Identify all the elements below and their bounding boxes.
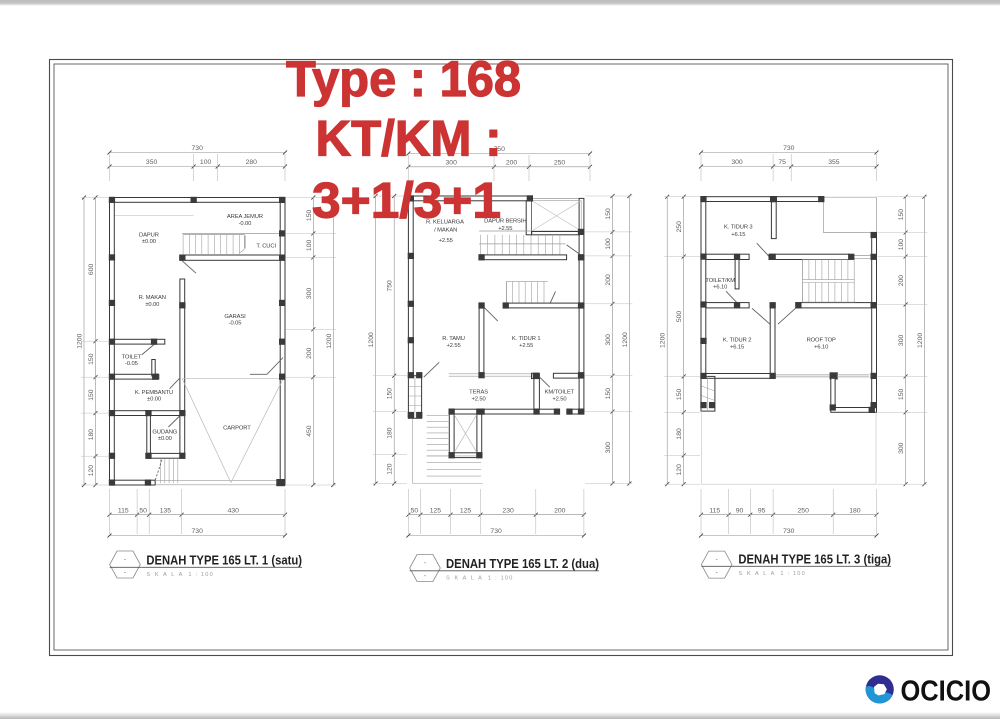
svg-text:350: 350 [146,159,158,166]
svg-text:3+1/3+1: 3+1/3+1 [312,173,501,229]
svg-text:730: 730 [192,528,204,535]
svg-text:150: 150 [605,208,612,220]
svg-text:300: 300 [605,334,612,346]
svg-text:TERAS: TERAS [469,390,488,396]
svg-text:95: 95 [758,507,766,514]
svg-text:120: 120 [88,465,95,477]
svg-text:DENAH TYPE 165 LT. 1 (satu): DENAH TYPE 165 LT. 1 (satu) [146,554,302,568]
svg-text:90: 90 [736,507,744,514]
svg-text:150: 150 [898,209,905,221]
svg-text:430: 430 [228,507,240,514]
svg-text:+6.15: +6.15 [730,344,744,350]
svg-text:125: 125 [430,507,442,514]
svg-text:1200: 1200 [326,333,333,348]
svg-text:100: 100 [898,239,905,251]
svg-text:±0.00: ±0.00 [147,397,161,403]
svg-text:120: 120 [387,463,394,475]
svg-text:300: 300 [898,442,905,454]
svg-text:1 : 100: 1 : 100 [780,571,806,577]
svg-text:450: 450 [306,425,313,437]
svg-text:+6.10: +6.10 [814,344,828,350]
svg-text:50: 50 [411,507,419,514]
svg-text:730: 730 [783,528,795,535]
svg-text:150: 150 [88,389,95,401]
svg-text:50: 50 [139,507,147,514]
svg-text:500: 500 [676,311,683,323]
svg-text:200: 200 [898,275,905,287]
svg-text:100: 100 [605,238,612,250]
svg-text:+6.10: +6.10 [713,285,727,291]
svg-text:Type : 168: Type : 168 [286,51,521,107]
svg-text:+2.55: +2.55 [447,343,461,349]
svg-text:R. TAMU: R. TAMU [442,336,465,342]
svg-text:+2.50: +2.50 [552,396,566,402]
svg-text:1200: 1200 [917,333,924,348]
svg-text:AREA JEMUR: AREA JEMUR [227,214,263,220]
svg-text:K. TIDUR 1: K. TIDUR 1 [512,336,541,342]
svg-text:+2.55: +2.55 [439,238,453,244]
svg-text:150: 150 [898,389,905,401]
svg-text:120: 120 [676,464,683,476]
svg-text:±0.00: ±0.00 [145,302,159,308]
svg-text:-0.05: -0.05 [125,361,138,367]
svg-text:250: 250 [676,221,683,233]
svg-text:300: 300 [605,442,612,454]
svg-text:1200: 1200 [660,333,667,348]
svg-text:S K A L A: S K A L A [446,576,484,582]
svg-text:200: 200 [306,347,313,359]
svg-text:DAPUR: DAPUR [139,233,159,239]
svg-text:K. PEMBANTU: K. PEMBANTU [135,390,173,396]
svg-text:150: 150 [387,388,394,400]
svg-text:730: 730 [783,145,795,152]
svg-text:250: 250 [798,507,810,514]
svg-text:280: 280 [246,159,258,166]
svg-text:1 : 100: 1 : 100 [188,572,214,578]
svg-text:+6.15: +6.15 [731,232,745,238]
svg-text:1200: 1200 [622,332,629,347]
svg-text:125: 125 [460,507,472,514]
svg-text:S K A L A: S K A L A [738,571,776,577]
svg-text:180: 180 [88,429,95,441]
svg-text:CARPORT: CARPORT [223,425,251,431]
svg-text:180: 180 [676,428,683,440]
svg-text:100: 100 [200,159,212,166]
svg-text:ROOF TOP: ROOF TOP [807,338,836,344]
svg-text:DENAH TYPE 165 LT. 2 (dua): DENAH TYPE 165 LT. 2 (dua) [446,557,599,571]
svg-text:R. MAKAN: R. MAKAN [139,295,166,301]
svg-text:115: 115 [709,507,720,514]
svg-text:300: 300 [731,159,743,166]
svg-text:+2.55: +2.55 [519,343,533,349]
svg-text:KT/KM :: KT/KM : [316,111,502,167]
svg-text:KM/TOILET: KM/TOILET [545,390,575,396]
svg-text:-0.05: -0.05 [229,321,242,327]
svg-text:+2.50: +2.50 [472,396,486,402]
svg-text:150: 150 [676,389,683,401]
svg-text:750: 750 [387,280,394,292]
svg-text:730: 730 [192,145,204,152]
svg-text:115: 115 [118,507,129,514]
svg-text:250: 250 [554,160,566,167]
svg-text:GUDANG: GUDANG [152,430,177,436]
svg-text:±0.00: ±0.00 [158,436,172,442]
svg-text:GARASI: GARASI [224,314,246,320]
svg-text:OCICIO: OCICIO [901,675,992,707]
svg-text:K. TIDUR 3: K. TIDUR 3 [724,225,753,231]
svg-text:K. TIDUR 2: K. TIDUR 2 [723,338,752,344]
svg-text:1 : 100: 1 : 100 [488,576,514,582]
svg-text:T. CUCI: T. CUCI [256,244,276,250]
svg-text:±0.00: ±0.00 [142,239,156,245]
svg-text:75: 75 [778,159,786,166]
svg-text:180: 180 [387,427,394,439]
svg-text:-0.00: -0.00 [239,221,252,227]
svg-text:DENAH TYPE 165 LT. 3 (tiga): DENAH TYPE 165 LT. 3 (tiga) [738,553,891,567]
svg-text:100: 100 [306,240,313,252]
svg-text:200: 200 [506,160,518,167]
svg-text:730: 730 [490,528,502,535]
svg-text:230: 230 [502,507,514,514]
svg-text:TOILET: TOILET [122,355,142,361]
svg-text:200: 200 [554,507,566,514]
svg-text:180: 180 [849,507,861,514]
svg-text:135: 135 [160,507,172,514]
svg-text:150: 150 [605,388,612,400]
svg-text:200: 200 [605,274,612,286]
svg-text:1200: 1200 [368,332,375,347]
svg-text:355: 355 [828,159,840,166]
svg-text:S K A L A: S K A L A [146,572,184,578]
svg-text:300: 300 [898,335,905,347]
svg-text:150: 150 [88,353,95,365]
svg-text:TOILET/KM: TOILET/KM [705,278,735,284]
svg-text:600: 600 [88,264,95,276]
svg-text:300: 300 [306,288,313,300]
